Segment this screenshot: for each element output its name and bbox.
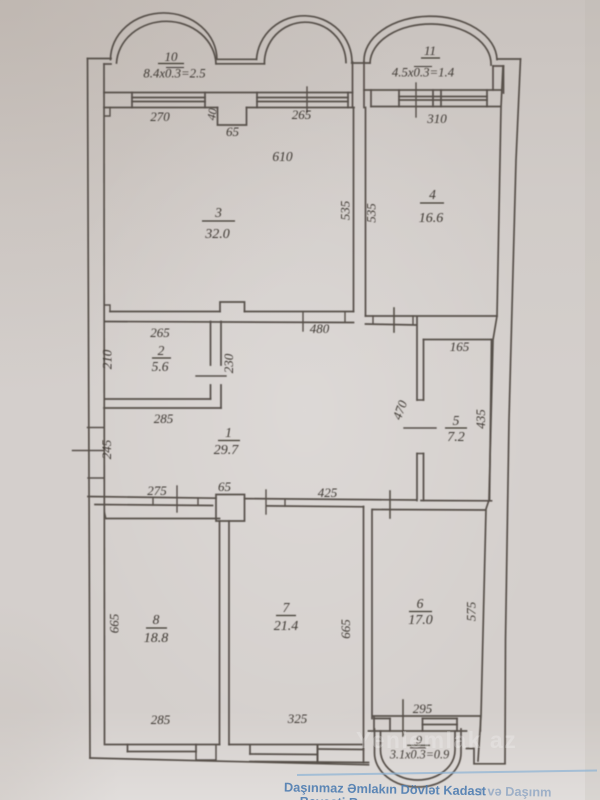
- svg-text:8: 8: [153, 612, 160, 627]
- svg-text:7.2: 7.2: [447, 430, 465, 445]
- svg-text:575: 575: [464, 601, 479, 621]
- svg-text:665: 665: [107, 613, 122, 633]
- svg-text:285: 285: [151, 712, 171, 727]
- svg-text:10: 10: [165, 49, 179, 64]
- svg-text:285: 285: [154, 411, 174, 426]
- svg-text:265: 265: [292, 107, 312, 122]
- svg-text:480: 480: [310, 321, 330, 336]
- svg-text:32.0: 32.0: [204, 227, 230, 242]
- svg-text:3: 3: [214, 205, 222, 220]
- svg-text:435: 435: [473, 409, 488, 429]
- svg-text:535: 535: [364, 203, 379, 223]
- svg-text:210: 210: [100, 349, 115, 369]
- svg-text:16.6: 16.6: [419, 211, 444, 226]
- svg-text:535: 535: [338, 200, 353, 220]
- svg-text:270: 270: [150, 109, 170, 124]
- svg-text:11: 11: [424, 43, 436, 58]
- svg-text:245: 245: [99, 439, 114, 459]
- svg-text:1: 1: [225, 425, 232, 440]
- svg-text:165: 165: [450, 339, 470, 354]
- svg-text:17.0: 17.0: [408, 613, 433, 628]
- svg-text:6: 6: [417, 596, 424, 611]
- svg-text:40: 40: [204, 107, 220, 121]
- svg-text:r və Daşınm: r və Daşınm: [479, 783, 552, 799]
- svg-text:4: 4: [429, 187, 436, 202]
- svg-text:21.4: 21.4: [274, 619, 299, 634]
- svg-text:29.7: 29.7: [214, 443, 240, 458]
- svg-text:265: 265: [150, 325, 170, 340]
- svg-text:230: 230: [221, 353, 236, 373]
- svg-text:610: 610: [272, 149, 293, 164]
- svg-text:665: 665: [338, 619, 353, 639]
- svg-text:425: 425: [318, 485, 338, 500]
- svg-text:Yeniemlak az: Yeniemlak az: [356, 727, 517, 753]
- svg-text:8.4x0.3=2.5: 8.4x0.3=2.5: [143, 67, 206, 81]
- svg-text:275: 275: [147, 483, 167, 498]
- svg-text:65: 65: [226, 124, 240, 139]
- svg-text:4.5x0.3=1.4: 4.5x0.3=1.4: [392, 66, 455, 80]
- svg-text:5: 5: [453, 413, 460, 428]
- svg-text:310: 310: [426, 111, 447, 126]
- svg-text:65: 65: [218, 479, 232, 494]
- svg-text:295: 295: [413, 701, 433, 716]
- svg-text:2: 2: [158, 343, 165, 358]
- svg-text:Bəyəsti Rayonu: Bəyəsti Rayonu: [300, 794, 396, 800]
- svg-text:18.8: 18.8: [144, 631, 169, 646]
- svg-text:325: 325: [287, 711, 308, 726]
- svg-text:5.6: 5.6: [152, 359, 169, 374]
